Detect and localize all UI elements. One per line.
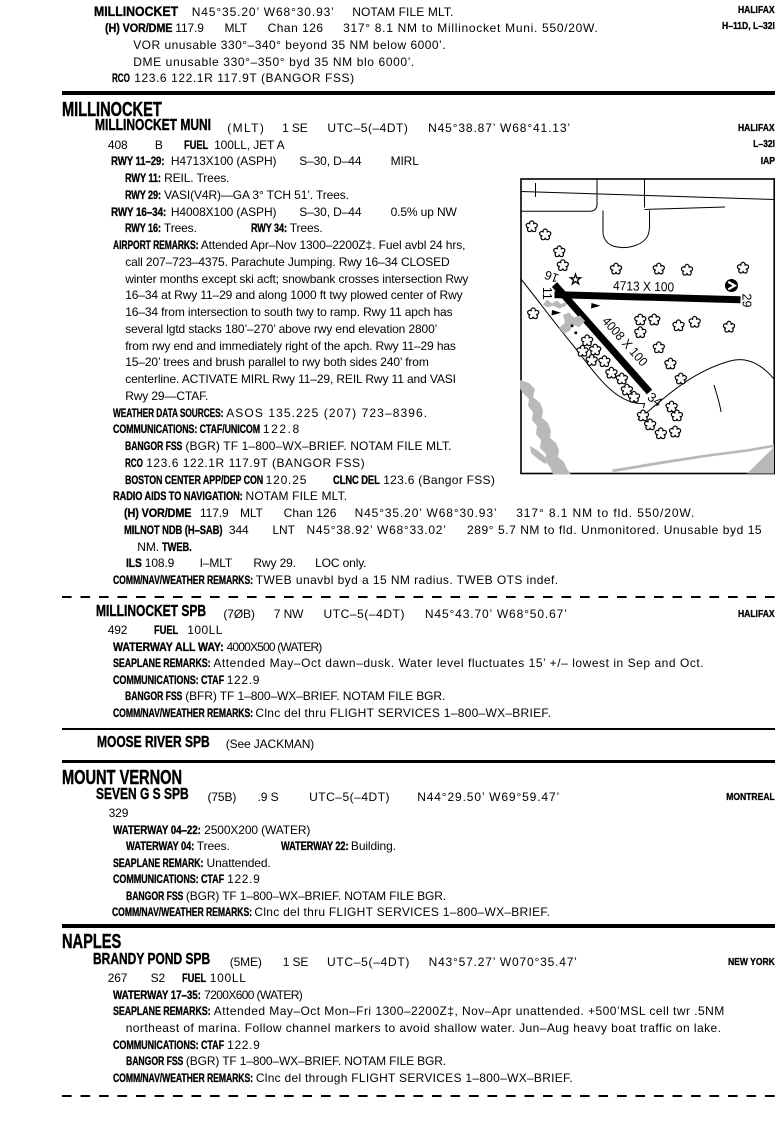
svg-text:4713 X 100: 4713 X 100 (613, 278, 674, 294)
svg-text:16: 16 (543, 267, 561, 285)
svg-text:11: 11 (540, 287, 554, 300)
svg-text:29: 29 (739, 294, 753, 308)
